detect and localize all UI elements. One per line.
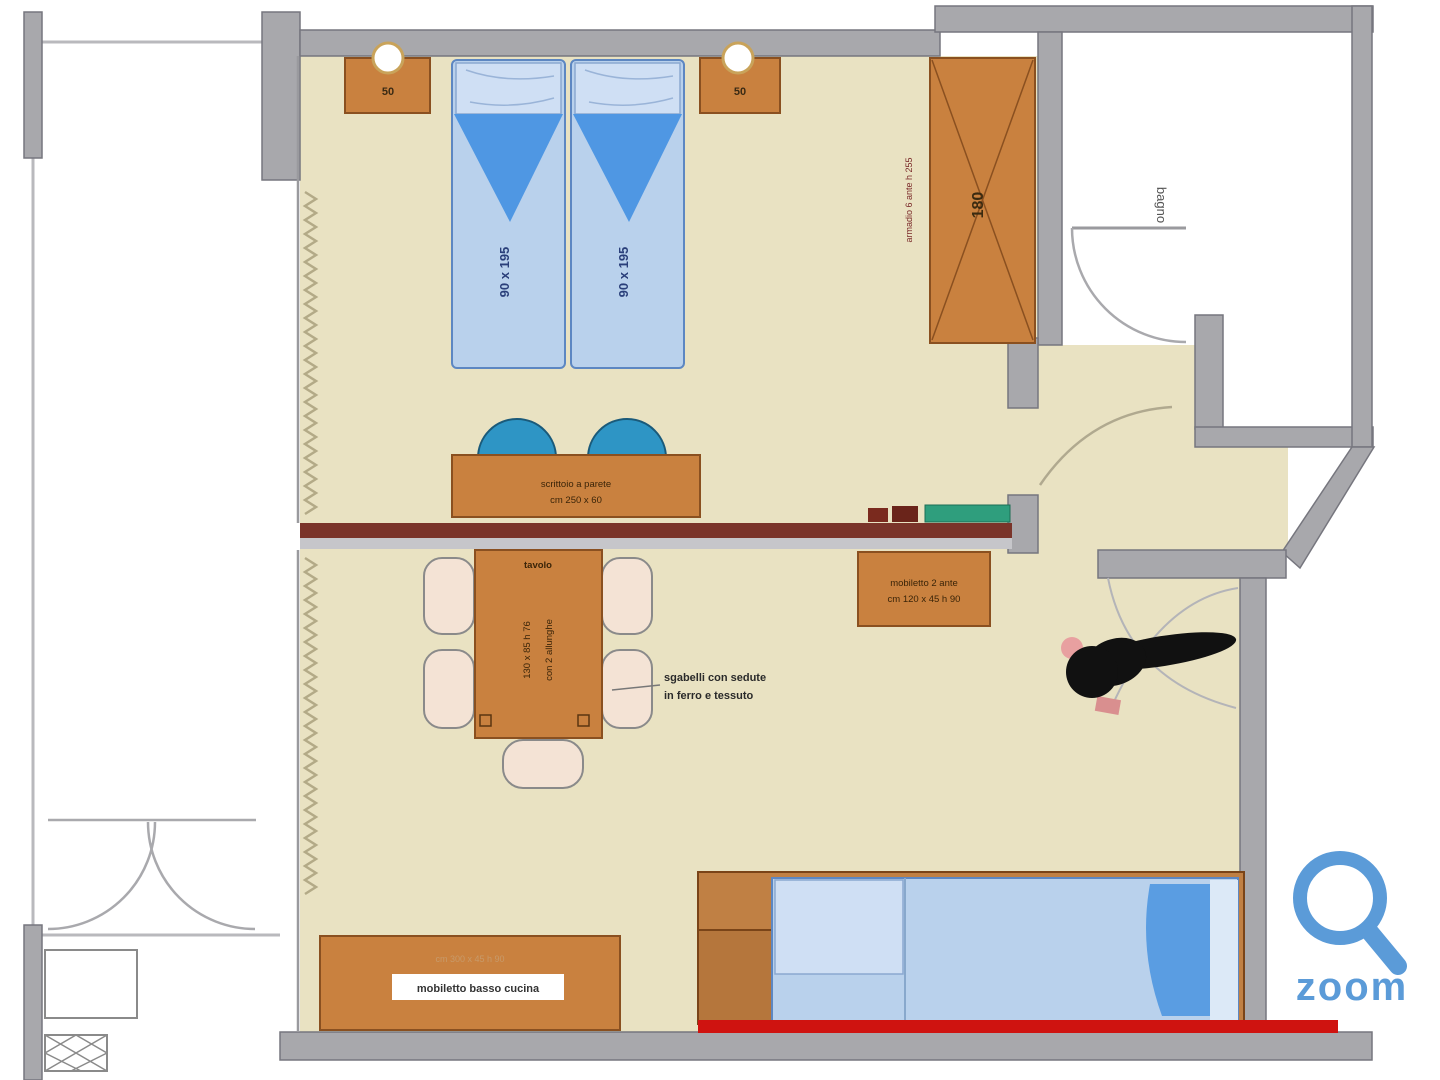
dining-chair-right-top xyxy=(602,558,652,634)
table-label: tavolo xyxy=(524,560,552,571)
dining-chair-bottom xyxy=(503,740,583,788)
person-head xyxy=(1066,646,1118,698)
kitchen-cabinet-body xyxy=(858,552,990,626)
bed-size-left: 90 x 195 xyxy=(497,247,512,298)
wall-stub-lower xyxy=(1008,495,1038,553)
kitchen-cabinet: mobiletto 2 ante cm 120 x 45 h 90 xyxy=(858,552,990,626)
wall-diagonal xyxy=(1282,447,1374,568)
wall-bathroom-door-side xyxy=(1195,315,1223,429)
counter-sink xyxy=(892,506,918,522)
dining-table: tavolo 130 x 85 h 76 con 2 allunghe xyxy=(475,550,602,738)
pillow-left xyxy=(456,63,561,114)
wall-bottom xyxy=(280,1032,1372,1060)
wall-under-bathroom xyxy=(1195,427,1373,447)
balcony-hatch-box xyxy=(45,1035,107,1071)
highlighted-wall-red xyxy=(698,1020,1338,1033)
bathroom-label: bagno xyxy=(1154,187,1169,223)
low-cabinet: cm 300 x 45 h 90 mobiletto basso cucina xyxy=(320,936,620,1030)
single-bed xyxy=(698,872,1244,1024)
chairs-note-1: sgabelli con sedute xyxy=(664,672,766,684)
bathroom-floor-lower xyxy=(1223,345,1352,427)
dining-chair-left-top xyxy=(424,558,474,634)
pillow-right xyxy=(575,63,680,114)
nightstand-right-size: 50 xyxy=(734,86,746,98)
wall-top-right xyxy=(935,6,1373,32)
low-cabinet-label: mobiletto basso cucina xyxy=(417,983,540,995)
partition-shadow xyxy=(300,538,1012,549)
counter-green-top xyxy=(925,505,1010,522)
low-cabinet-dim: cm 300 x 45 h 90 xyxy=(435,954,504,964)
wall-entry-bottom xyxy=(1098,550,1286,578)
table-dim-2: con 2 allunghe xyxy=(544,619,555,681)
single-bed-pillow xyxy=(775,880,903,974)
wall-stub-upper xyxy=(1008,338,1038,408)
zoom-logo[interactable]: zoom xyxy=(1296,858,1408,1009)
desk-label-1: scrittoio a parete xyxy=(541,479,611,490)
bathroom-floor xyxy=(1062,32,1352,345)
dining-chair-left-bottom xyxy=(424,650,474,728)
wardrobe-note: armadio 6 ante h 255 xyxy=(904,157,914,242)
wall-pier-bottom-left xyxy=(24,925,42,1080)
kitchen-cabinet-label-2: cm 120 x 45 h 90 xyxy=(888,594,961,605)
wall-outer-right xyxy=(1352,6,1372,447)
bed-size-right: 90 x 195 xyxy=(616,247,631,298)
chairs-note-2: in ferro e tessuto xyxy=(664,690,754,702)
zoom-logo-text[interactable]: zoom xyxy=(1296,965,1408,1009)
magnifier-handle[interactable] xyxy=(1369,931,1398,966)
french-door-arc-left xyxy=(48,822,155,929)
table-dim: 130 x 85 h 76 xyxy=(522,621,533,679)
sheet-end xyxy=(1210,880,1238,1020)
dining-table-top xyxy=(475,550,602,738)
wardrobe-size: 180 xyxy=(970,192,987,219)
bedside-box xyxy=(698,930,774,1024)
wall-lamp-right xyxy=(723,43,753,73)
kitchen-cabinet-label-1: mobiletto 2 ante xyxy=(890,578,958,589)
desk-label-2: cm 250 x 60 xyxy=(550,495,602,506)
floor-plan: 50 50 90 x 195 90 x 195 scrittoio a pare… xyxy=(0,0,1440,1080)
wall-pier-top-left xyxy=(24,12,42,158)
partition-red-wall xyxy=(300,523,1012,538)
french-door-arc-right xyxy=(148,822,255,929)
wall-bathroom-left xyxy=(1038,32,1062,345)
counter-hob xyxy=(868,508,888,522)
balcony xyxy=(33,42,280,1071)
nightstand-left-size: 50 xyxy=(382,86,394,98)
wall-lamp-left xyxy=(373,43,403,73)
balcony-table xyxy=(45,950,137,1018)
wall-corner-top-left xyxy=(262,12,300,180)
